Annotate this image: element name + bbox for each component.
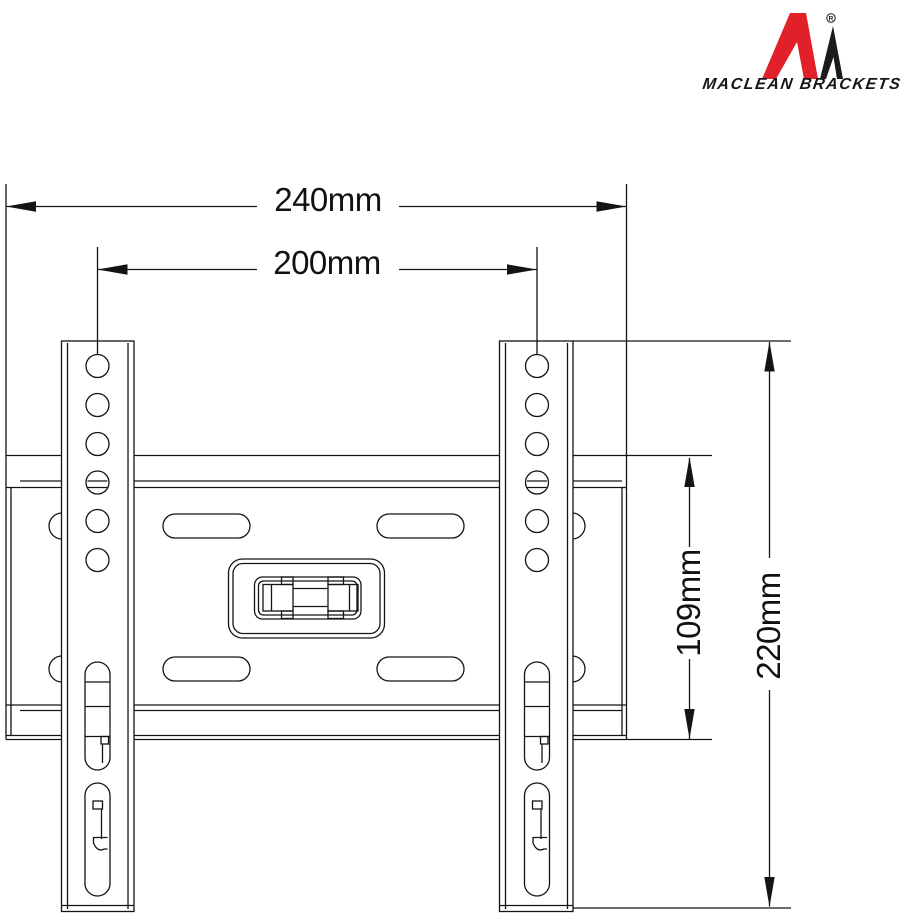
left-rail-upper-slot: [85, 662, 110, 770]
mounting-hole: [526, 471, 549, 494]
mounting-hole: [526, 394, 549, 417]
arrowhead-up: [764, 342, 774, 372]
registered-trademark-letter: R: [829, 15, 834, 22]
arrowhead-down: [684, 709, 694, 739]
arrowhead-right: [507, 264, 537, 274]
mounting-hole: [86, 433, 109, 456]
mounting-hole: [526, 433, 549, 456]
plate-slot: [163, 514, 250, 538]
left-rail: [62, 341, 135, 912]
right-rail-upper-slot: [525, 662, 550, 770]
mounting-hole: [86, 394, 109, 417]
arrowhead-down: [764, 877, 774, 907]
arrowhead-left: [6, 201, 36, 211]
mounting-hole: [86, 471, 109, 494]
dimension-label-rail-height: 220mm: [751, 526, 787, 726]
right-rail-lower-slot: [525, 783, 550, 896]
plate-slot: [163, 657, 250, 681]
bracket-technical-drawing: [0, 0, 920, 920]
mounting-hole: [86, 549, 109, 572]
latch-left-block: [263, 585, 293, 612]
dimension-label-outer-width: 240mm: [228, 182, 428, 218]
arrowhead-up: [684, 457, 694, 487]
center-latch-detail: [229, 559, 385, 638]
logo-m-red-part: [762, 13, 818, 79]
mounting-hole: [526, 355, 549, 378]
dimension-label-plate-height: 109mm: [671, 503, 707, 703]
mounting-hole: [86, 510, 109, 533]
brand-name: MACLEAN BRACKETS: [681, 76, 920, 94]
dimension-label-hole-spacing: 200mm: [227, 245, 427, 281]
right-rail: [500, 341, 574, 912]
latch-right-block: [328, 585, 358, 612]
mounting-hole: [86, 355, 109, 378]
arrowhead-right: [597, 201, 627, 211]
arrowhead-left: [98, 264, 128, 274]
technical-drawing-page: 240mm 200mm 109mm 220mm R MACLEAN BRACKE…: [0, 0, 920, 920]
left-rail-lower-slot: [85, 783, 110, 896]
maclean-brackets-logo: R MACLEAN BRACKETS: [690, 8, 918, 104]
mounting-hole: [526, 510, 549, 533]
mounting-hole: [526, 549, 549, 572]
plate-slot: [377, 514, 464, 538]
plate-slot: [377, 657, 464, 681]
logo-m-black-part: [820, 26, 843, 79]
